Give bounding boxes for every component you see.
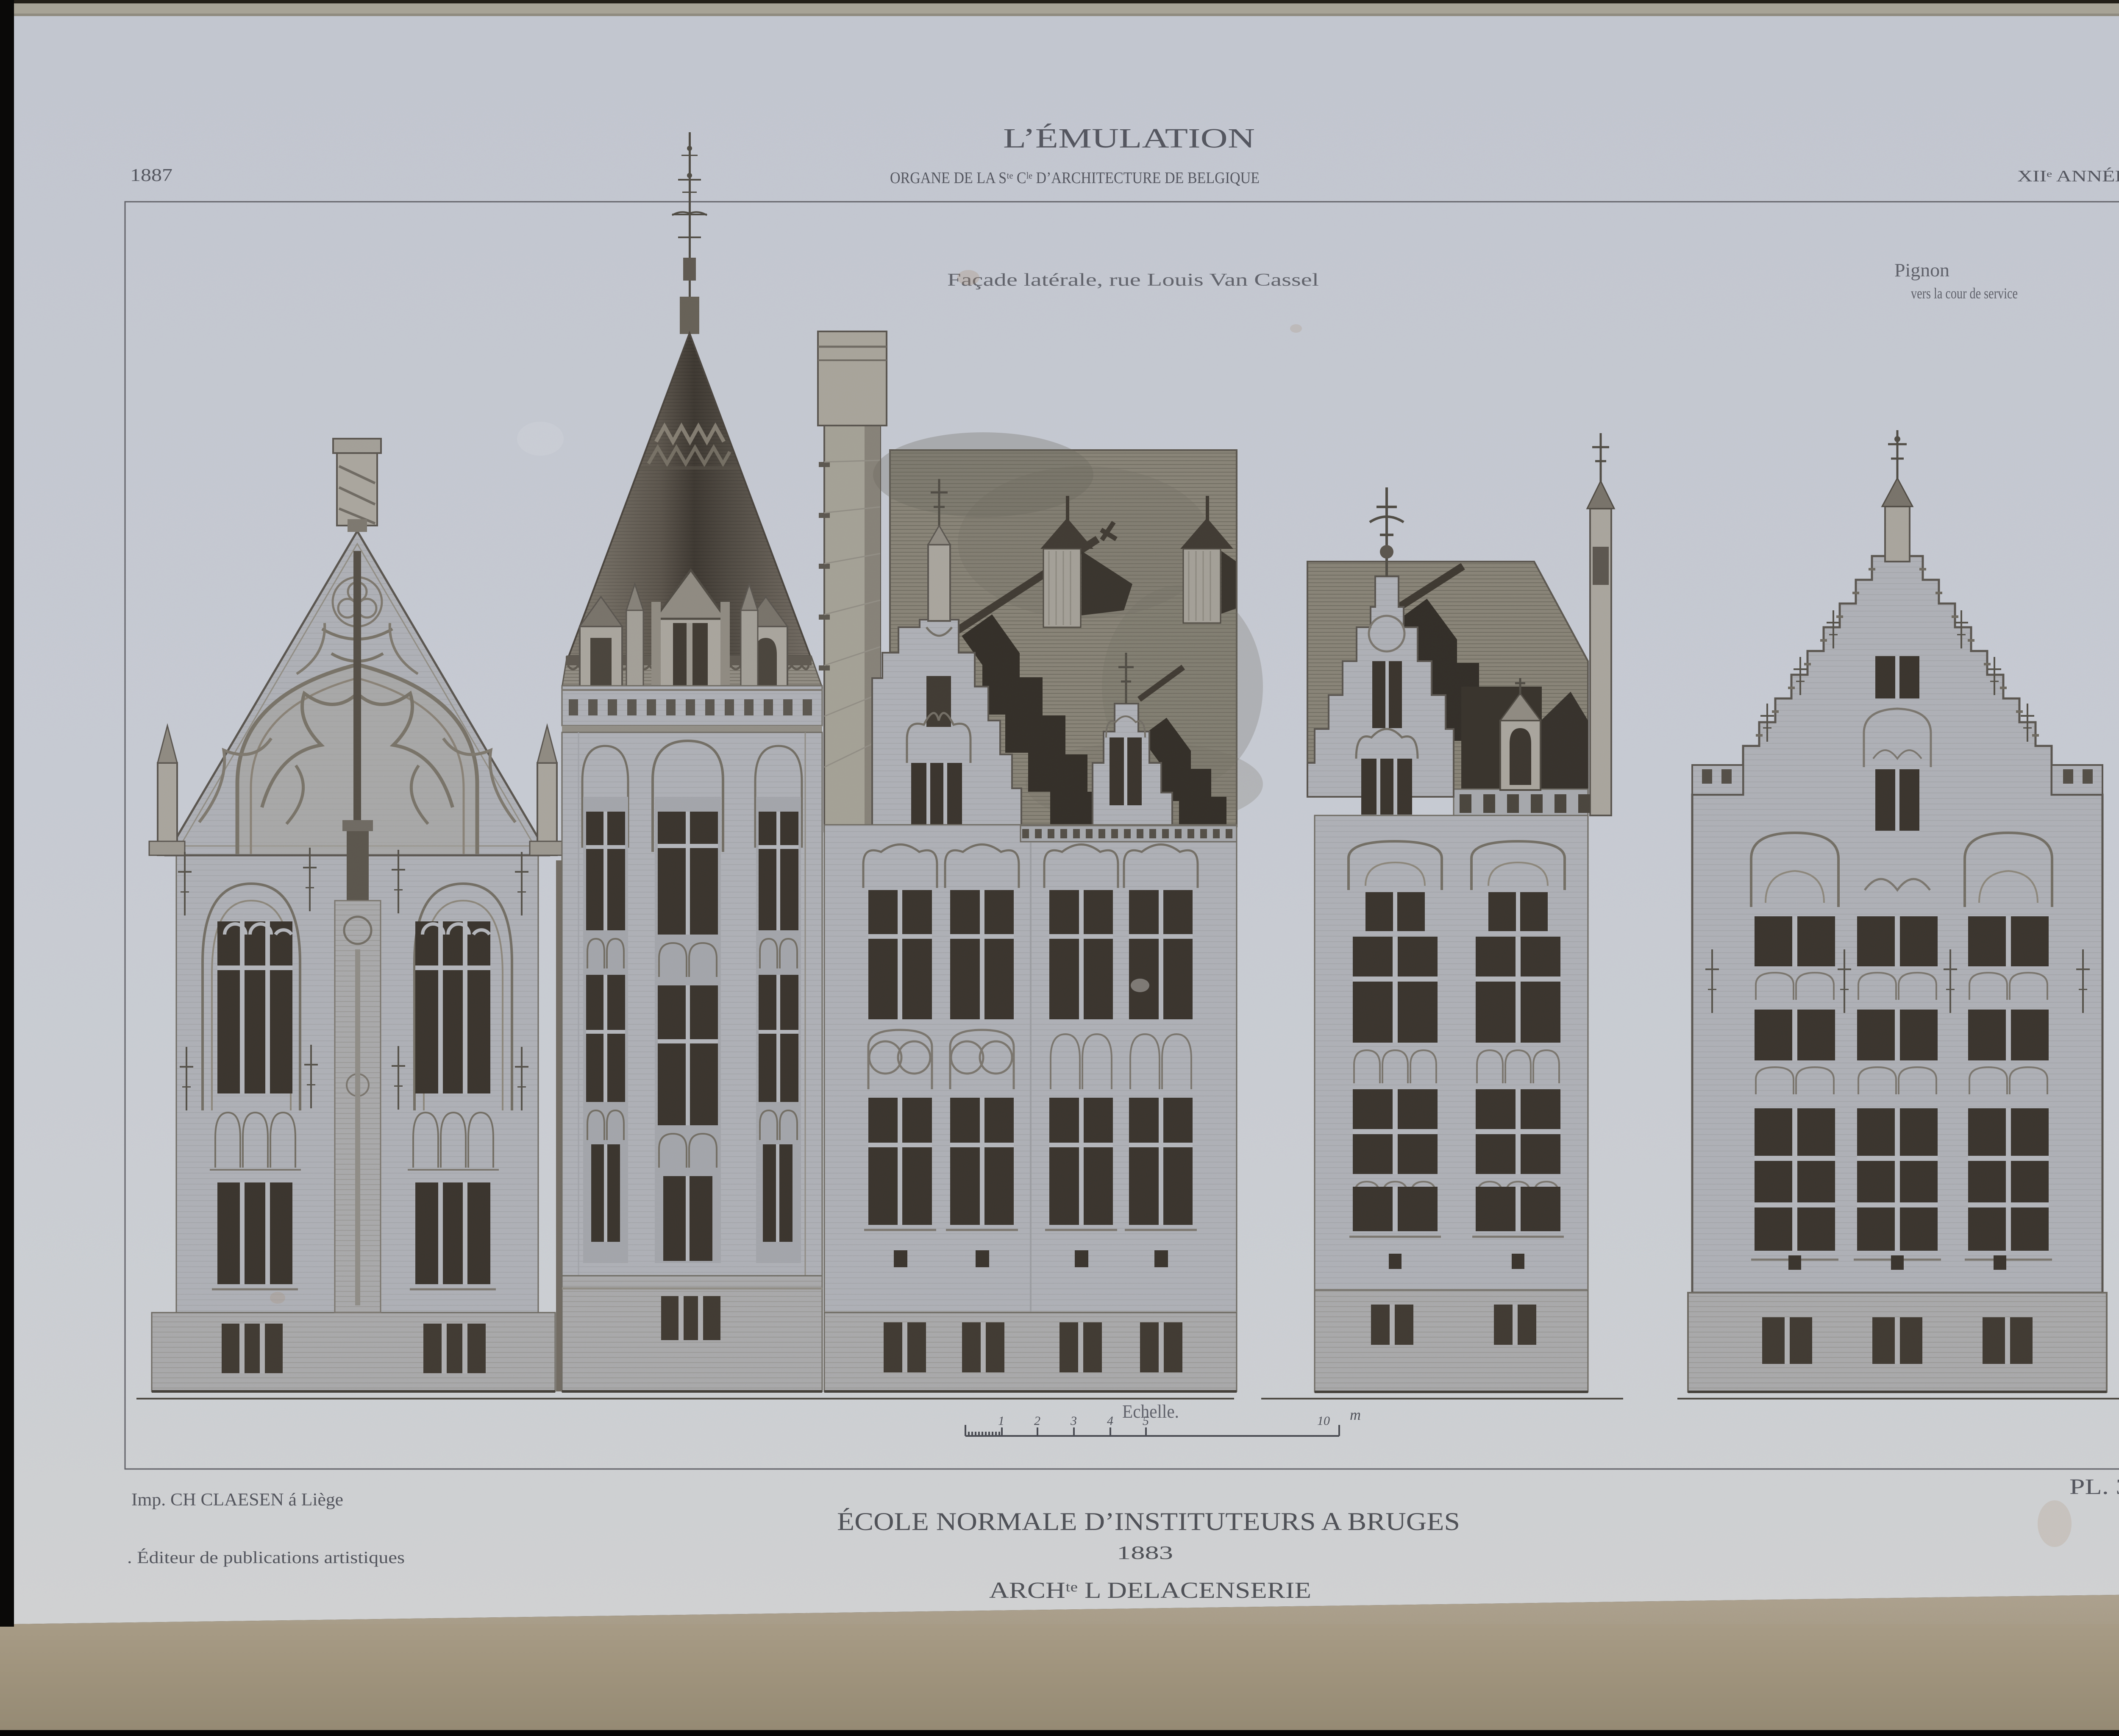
svg-text:ARCHᵗᵉ L DELACENSERIE: ARCHᵗᵉ L DELACENSERIE — [989, 1577, 1311, 1603]
svg-text:1883: 1883 — [1117, 1542, 1173, 1563]
svg-text:. Éditeur de publications arti: . Éditeur de publications artistiques — [127, 1548, 405, 1567]
svg-text:ÉCOLE NORMALE D’INSTITUTEURS A: ÉCOLE NORMALE D’INSTITUTEURS A BRUGES — [837, 1508, 1460, 1536]
svg-text:Imp. CH CLAESEN á Liège: Imp. CH CLAESEN á Liège — [131, 1490, 343, 1510]
svg-text:PL. 39: PL. 39 — [2069, 1475, 2119, 1499]
